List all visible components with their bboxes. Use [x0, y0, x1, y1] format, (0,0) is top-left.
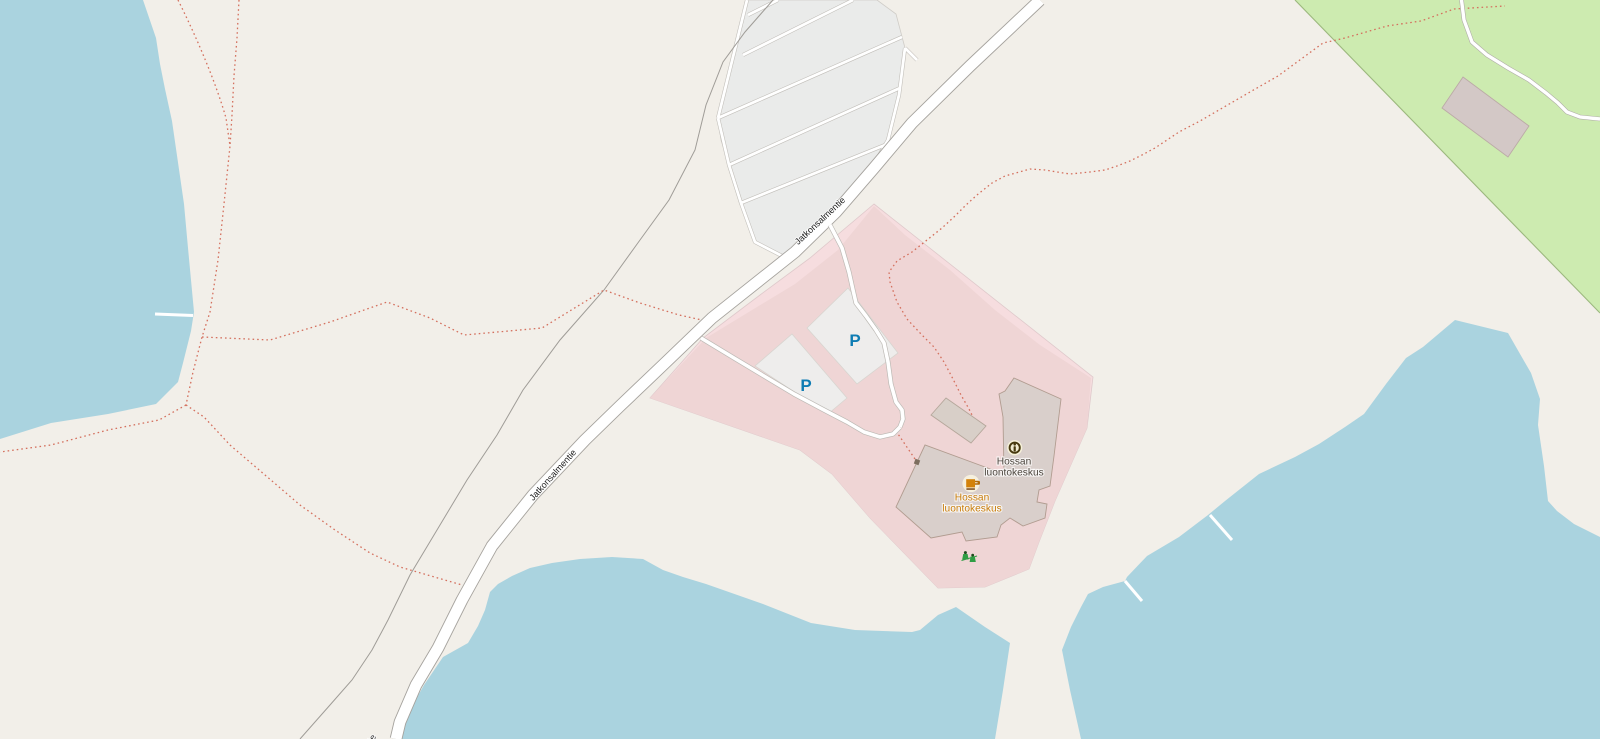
- svg-text:P: P: [849, 331, 860, 350]
- svg-text:luontokeskus: luontokeskus: [984, 468, 1043, 479]
- svg-text:Hossan: Hossan: [997, 457, 1032, 468]
- svg-text:luontokeskus: luontokeskus: [942, 504, 1001, 515]
- svg-text:P: P: [800, 376, 811, 395]
- svg-text:Hossan: Hossan: [955, 493, 990, 504]
